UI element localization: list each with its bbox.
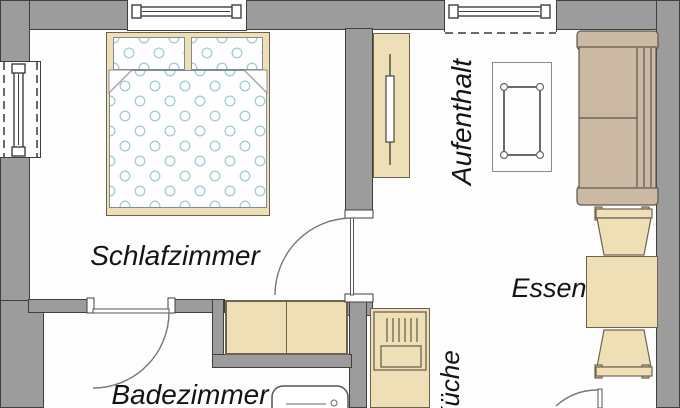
room-label-kueche: Küche xyxy=(437,327,467,408)
room-label-aufenthalt: Aufenthalt xyxy=(448,12,480,232)
wall-top-middle xyxy=(246,0,446,30)
entry-door xyxy=(556,389,602,408)
bathroom-door xyxy=(87,298,175,388)
sofa xyxy=(577,31,658,205)
chair-top xyxy=(595,207,652,255)
wall-bedroom-divider xyxy=(345,28,373,218)
chair-bottom xyxy=(595,330,652,378)
floor-plan: Schlafzimmer Aufenthalt Essen Badezimmer… xyxy=(0,0,680,408)
wardrobe-section-left xyxy=(226,301,287,354)
wall-niche-bottom xyxy=(212,354,352,368)
kitchen-unit xyxy=(370,308,430,408)
wall-left-middle xyxy=(0,157,30,302)
wall-left-upper xyxy=(0,0,30,63)
room-label-schlafzimmer: Schlafzimmer xyxy=(60,242,290,270)
coffee-table-top xyxy=(503,86,541,156)
wardrobe xyxy=(225,300,348,355)
pillow-right xyxy=(191,37,263,70)
wall-bathroom-top-left xyxy=(28,299,93,313)
sofa-body xyxy=(579,47,656,188)
window-top-left xyxy=(127,0,247,31)
door-swing-arc xyxy=(556,390,598,406)
wardrobe-section-right xyxy=(286,301,347,354)
room-label-essen: Essen xyxy=(494,275,604,302)
wall-left-lower xyxy=(0,300,44,408)
pillow-left xyxy=(113,37,185,70)
bed-blanket xyxy=(109,70,267,208)
sideboard xyxy=(373,33,410,178)
sofa-armrest-bottom xyxy=(577,186,658,205)
room-label-badezimmer: Badezimmer xyxy=(75,381,305,408)
window-left xyxy=(0,61,41,158)
sofa-armrest-top xyxy=(577,31,658,50)
door-swing-arc xyxy=(93,312,169,388)
wall-right xyxy=(656,0,680,408)
